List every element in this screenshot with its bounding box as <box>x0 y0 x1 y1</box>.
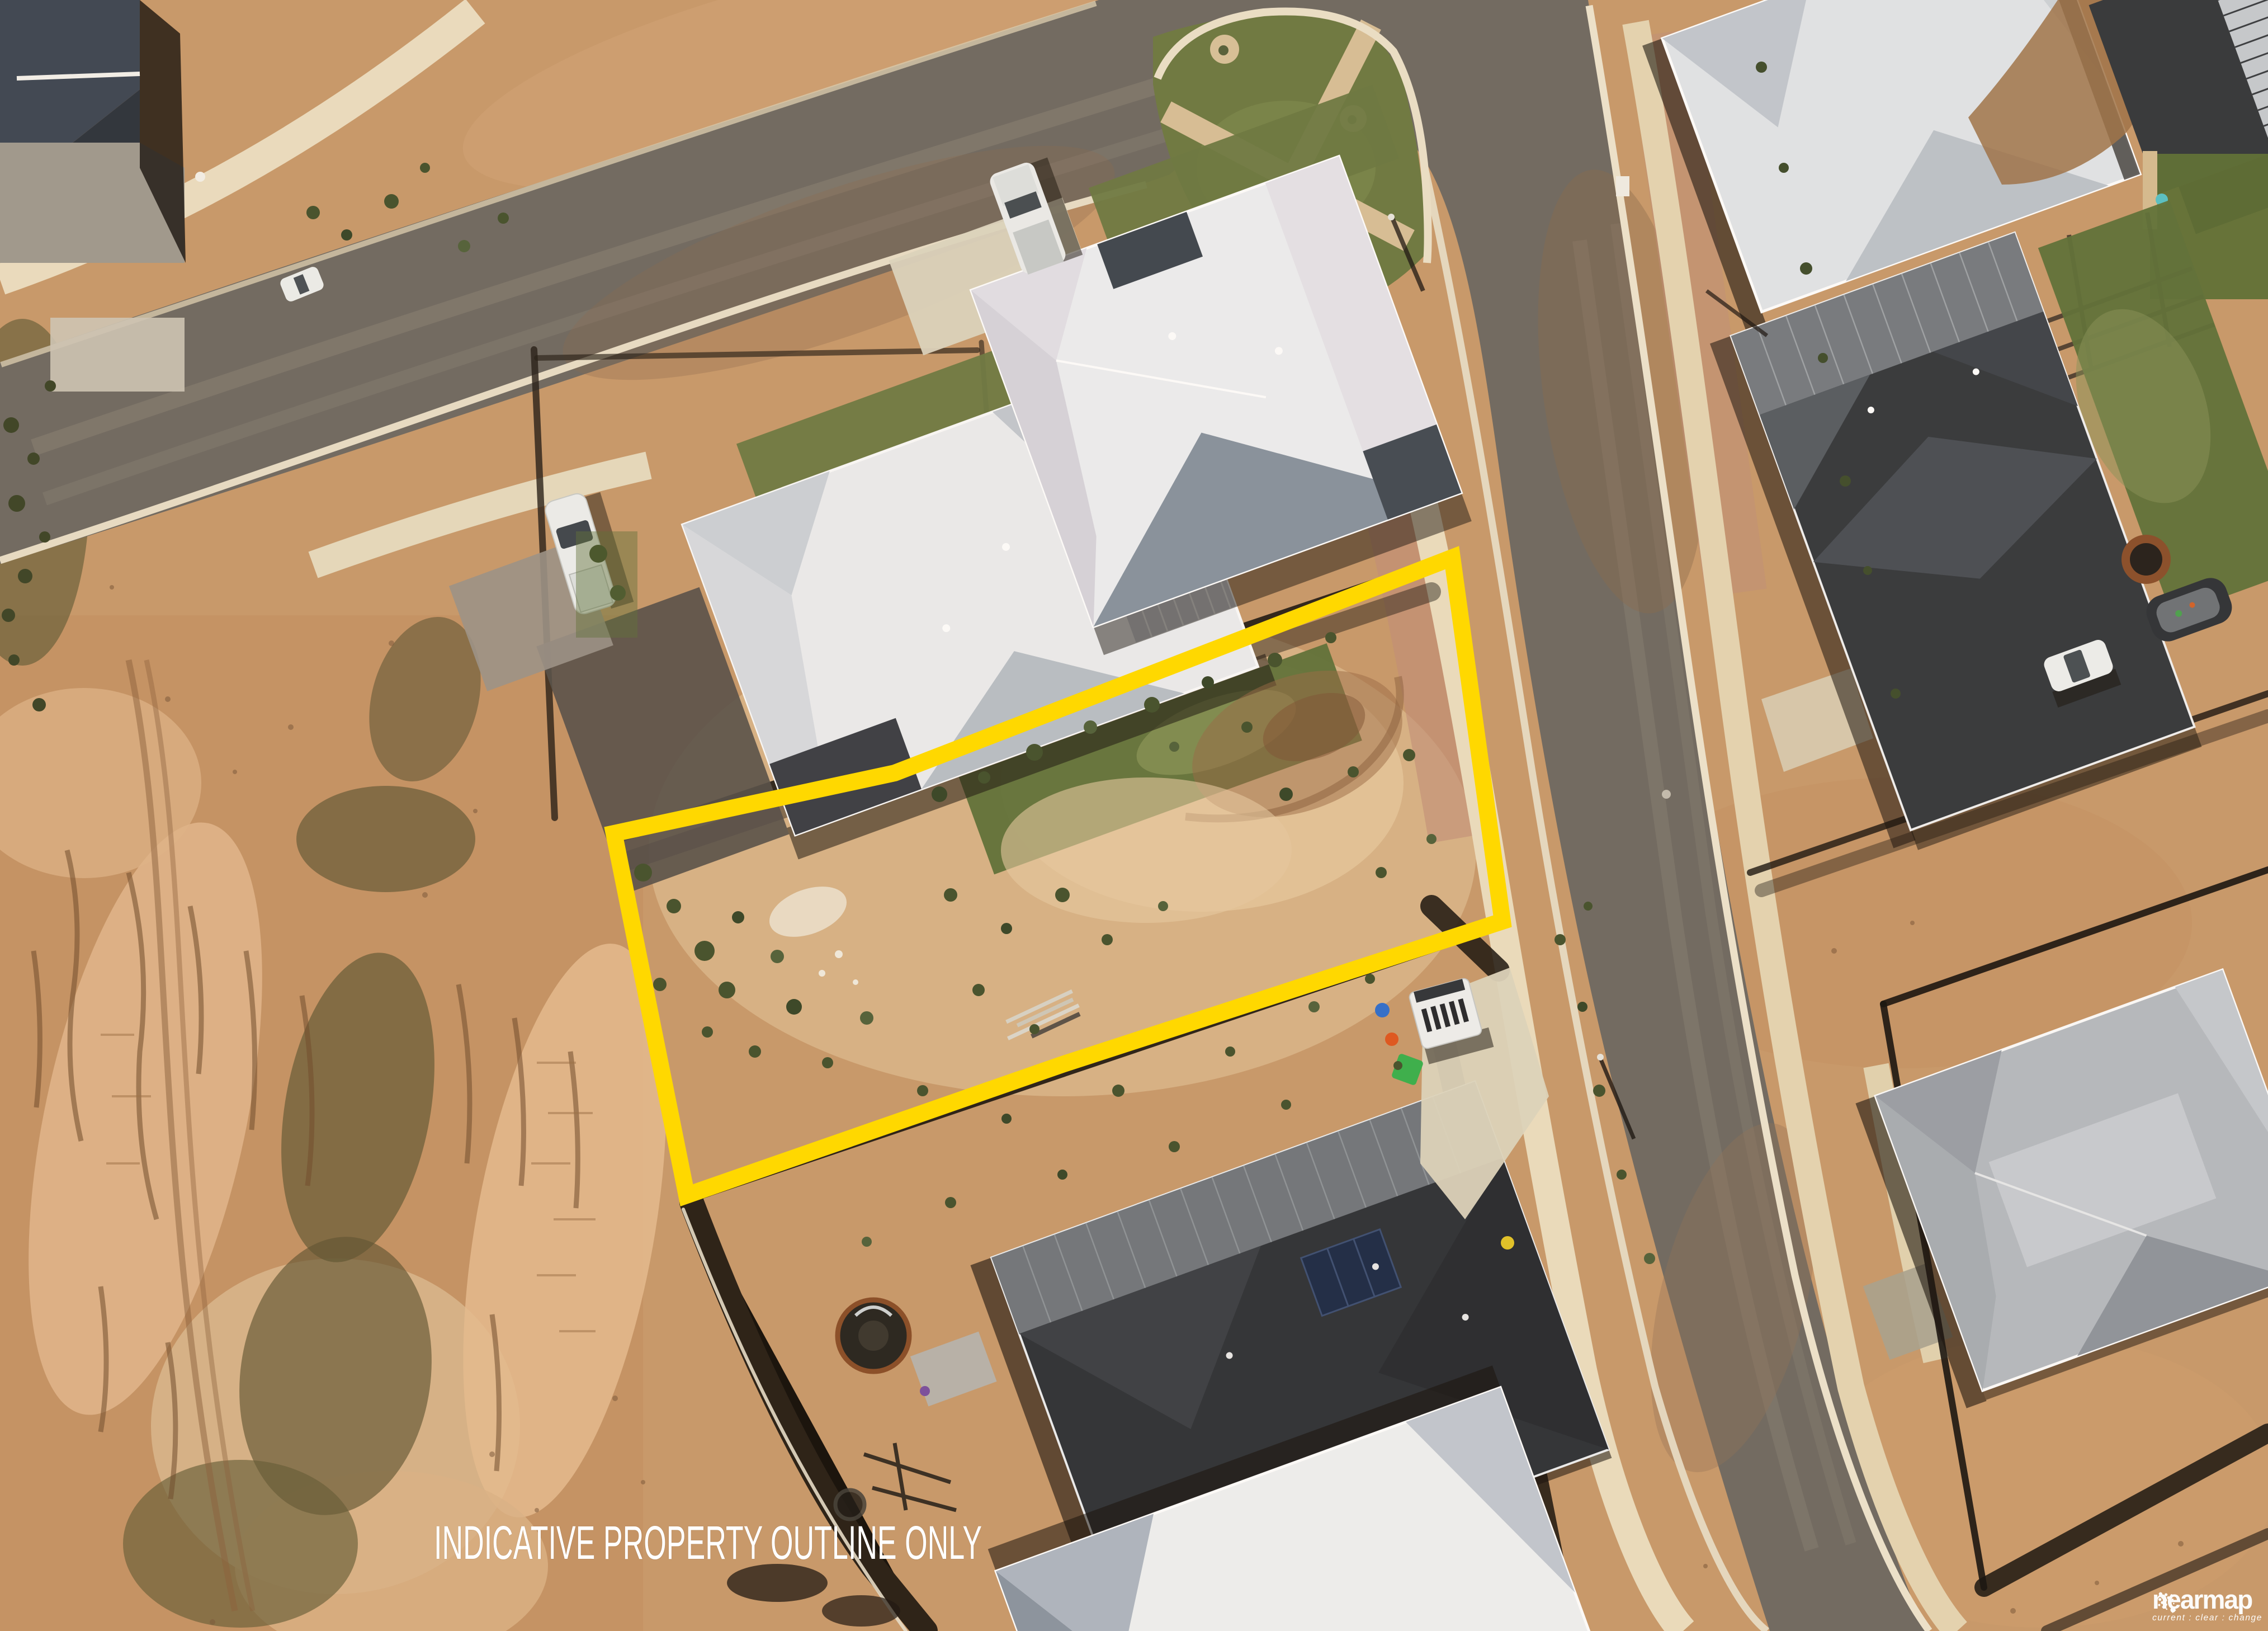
color-grade <box>0 0 2268 1631</box>
disclaimer-text: INDICATIVE PROPERTY OUTLINE ONLY <box>434 1517 982 1568</box>
aerial-photo <box>0 0 2268 1631</box>
aerial-screenshot: INDICATIVE PROPERTY OUTLINE ONLY nearmap <box>0 0 2268 1631</box>
nearmap-watermark: nearmap current : clear : change <box>2152 1588 2262 1623</box>
